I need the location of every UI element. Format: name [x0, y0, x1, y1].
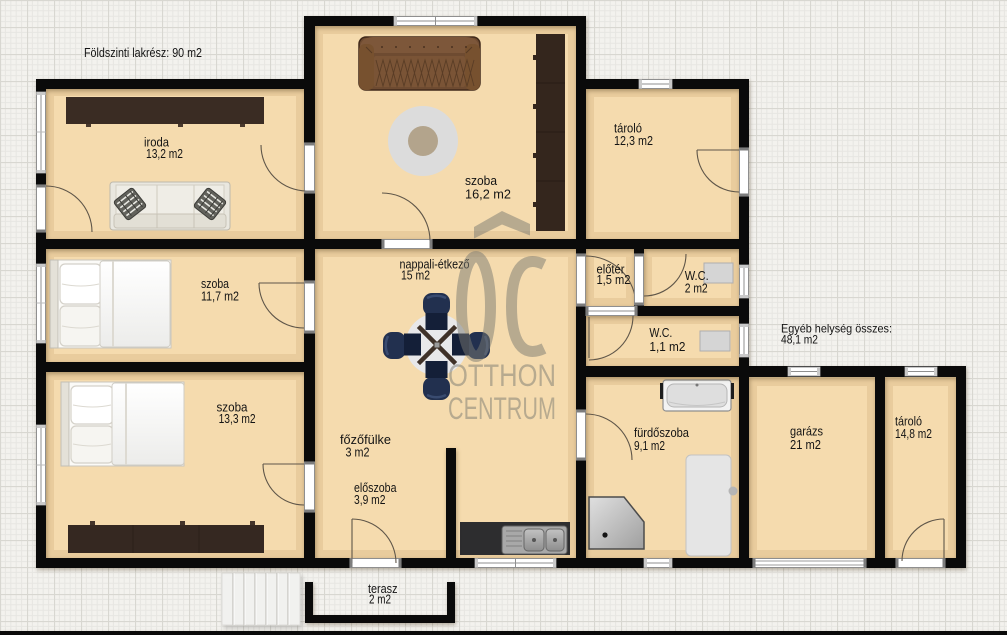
- svg-text:13,2 m2: 13,2 m2: [146, 147, 183, 161]
- svg-text:21 m2: 21 m2: [790, 438, 821, 452]
- svg-text:3,9 m2: 3,9 m2: [354, 493, 386, 507]
- svg-text:11,7 m2: 11,7 m2: [201, 290, 239, 304]
- svg-text:9,1 m2: 9,1 m2: [634, 439, 665, 453]
- svg-text:OTTHON: OTTHON: [448, 357, 556, 393]
- svg-text:Földszinti lakrész: 90 m2: Földszinti lakrész: 90 m2: [84, 45, 202, 60]
- svg-text:2 m2: 2 m2: [369, 593, 391, 607]
- svg-text:W.C.: W.C.: [649, 326, 672, 340]
- svg-text:3 m2: 3 m2: [346, 446, 370, 460]
- svg-text:12,3 m2: 12,3 m2: [614, 134, 653, 148]
- svg-text:2 m2: 2 m2: [685, 282, 708, 296]
- svg-text:1,1 m2: 1,1 m2: [649, 340, 685, 354]
- svg-text:fürdőszoba: fürdőszoba: [634, 426, 689, 440]
- svg-text:48,1 m2: 48,1 m2: [781, 333, 818, 347]
- svg-text:13,3 m2: 13,3 m2: [219, 412, 256, 426]
- svg-text:garázs: garázs: [790, 425, 823, 439]
- svg-text:16,2 m2: 16,2 m2: [465, 188, 511, 202]
- svg-text:szoba: szoba: [465, 174, 497, 188]
- svg-text:14,8 m2: 14,8 m2: [895, 427, 932, 441]
- svg-text:1,5 m2: 1,5 m2: [597, 273, 631, 287]
- svg-text:CENTRUM: CENTRUM: [448, 390, 556, 426]
- svg-text:15 m2: 15 m2: [401, 269, 430, 283]
